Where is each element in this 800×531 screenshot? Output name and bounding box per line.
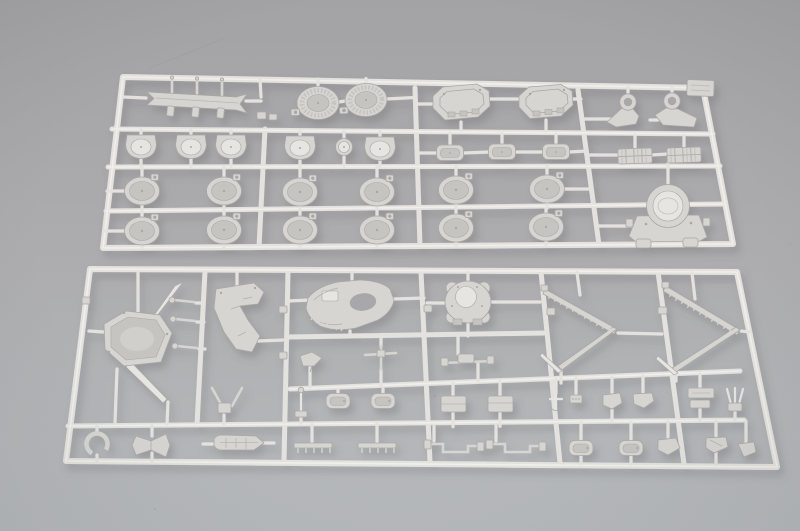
pan-fitting: [489, 144, 516, 160]
roof-plate: [216, 135, 247, 159]
pan-fitting: [543, 144, 570, 160]
dotted-fitting: [570, 395, 582, 403]
ejector-tab: [658, 307, 667, 314]
block-fitting: [441, 396, 466, 412]
ejector-tab: [257, 112, 266, 119]
lattice-platform: [667, 147, 702, 163]
roof-plate: [176, 135, 207, 159]
ships-boat: [569, 441, 593, 456]
ejector-tab: [279, 352, 287, 359]
round-cap-part: [336, 139, 353, 156]
moulding-tag-plate: [687, 80, 715, 97]
roof-plate: [365, 137, 396, 161]
pan-fitting: [437, 145, 464, 161]
ships-boat: [326, 394, 350, 409]
block-fitting: [488, 396, 513, 412]
ejector-tab: [547, 308, 555, 315]
ejector-tab: [279, 306, 287, 313]
photo-canvas: [0, 0, 800, 531]
roof-plate: [285, 136, 316, 160]
ships-boat: [619, 441, 643, 456]
photo-stage: [0, 0, 800, 531]
block-pair-fitting: [688, 388, 714, 408]
ships-launch: [214, 435, 264, 450]
turret-platform: [445, 281, 491, 325]
ejector-tab: [82, 297, 90, 304]
ejector-tab: [269, 114, 277, 120]
ships-boat: [371, 394, 395, 409]
lattice-platform: [618, 148, 653, 164]
roof-plate: [126, 135, 157, 159]
ejector-tab: [424, 305, 432, 312]
